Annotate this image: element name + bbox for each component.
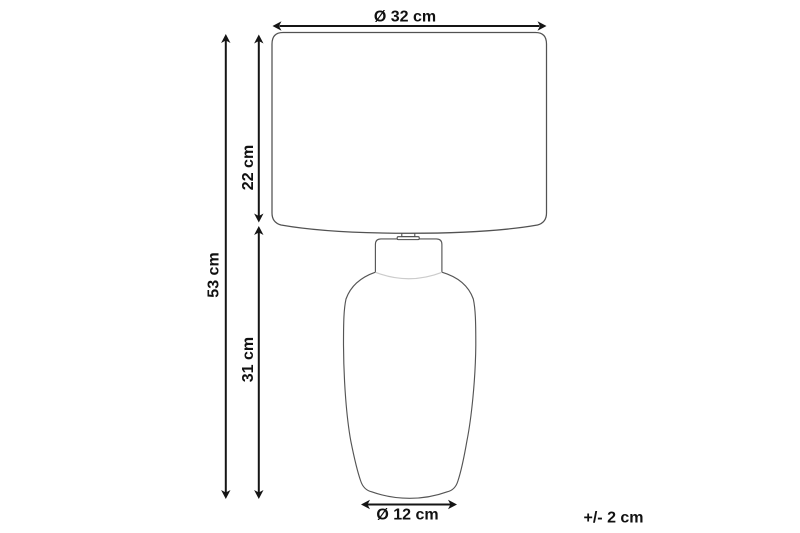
svg-text:+/- 2 cm: +/- 2 cm [584,510,644,527]
svg-text:22 cm: 22 cm [240,145,257,190]
svg-text:31 cm: 31 cm [240,337,257,382]
svg-text:Ø 12 cm: Ø 12 cm [376,506,438,523]
svg-text:Ø 32 cm: Ø 32 cm [374,9,436,26]
svg-text:53 cm: 53 cm [206,252,223,297]
